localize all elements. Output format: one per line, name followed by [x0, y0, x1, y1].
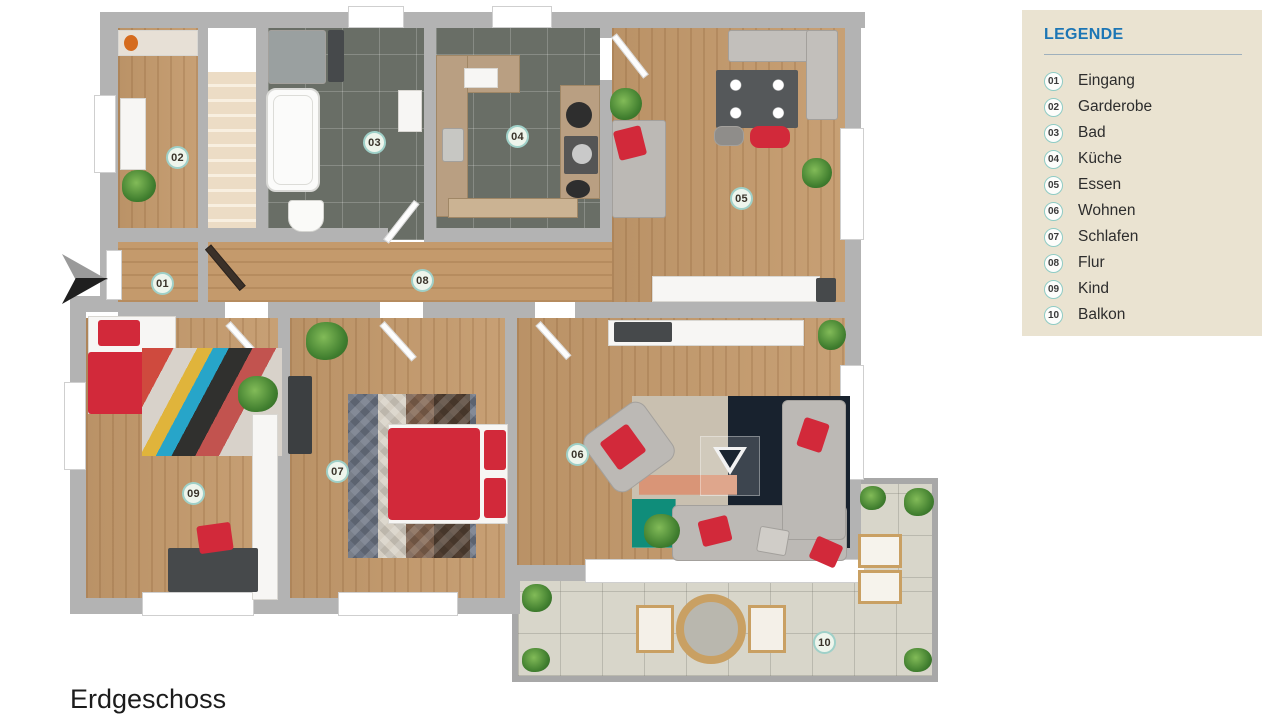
window-left-kind [64, 382, 86, 470]
dining-chair-gray [714, 126, 744, 146]
legend-item-bad: 03 Bad [1044, 120, 1242, 146]
balcony-chair-right [748, 605, 786, 653]
legend-label: Schlafen [1078, 228, 1138, 246]
balcony-table [676, 594, 746, 664]
legend-number: 08 [1044, 254, 1063, 273]
room-badge-kind: 09 [182, 482, 205, 505]
legend-item-wohnen: 06 Wohnen [1044, 198, 1242, 224]
legend-item-essen: 05 Essen [1044, 172, 1242, 198]
legend-number: 10 [1044, 306, 1063, 325]
window-bottom-kind [142, 592, 254, 616]
living-pillow-gray [756, 526, 790, 557]
kitchen-prep-plate [464, 68, 498, 88]
balcony-chair-left [636, 605, 674, 653]
toilet [288, 200, 324, 232]
legend-label: Wohnen [1078, 202, 1135, 220]
wall-bad-kueche [424, 28, 436, 242]
legend-divider [1044, 54, 1242, 55]
legend-item-eingang: 01 Eingang [1044, 68, 1242, 94]
balcony-lounger-2 [858, 570, 902, 604]
balcony-rim-right [932, 478, 938, 682]
legend-item-schlafen: 07 Schlafen [1044, 224, 1242, 250]
window-left-garderobe [94, 95, 116, 173]
living-tv [614, 322, 672, 342]
staircase-steps [208, 72, 256, 228]
wall-corridor-c [423, 302, 535, 318]
garderobe-wardrobe [120, 98, 146, 170]
room-badge-essen: 05 [730, 187, 753, 210]
bath-sink [398, 90, 422, 132]
bedroom-pillow-2 [484, 478, 506, 518]
legend-label: Balkon [1078, 306, 1125, 324]
kitchen-pot [572, 144, 592, 164]
wall-under-top-rooms-a [118, 228, 388, 242]
dining-sideboard [652, 276, 820, 302]
dining-table [716, 70, 798, 128]
room-badge-schlafen: 07 [326, 460, 349, 483]
room-badge-balkon: 10 [813, 631, 836, 654]
floor-title: Erdgeschoss [70, 684, 226, 715]
room-badge-eingang: 01 [151, 272, 174, 295]
kids-bed-pillow [98, 320, 140, 346]
kids-desk [168, 548, 258, 592]
legend-number: 07 [1044, 228, 1063, 247]
balcony-rim-bottom [512, 676, 938, 682]
window-right-essen [840, 128, 864, 240]
legend-item-flur: 08 Flur [1044, 250, 1242, 276]
dining-chair-red [750, 126, 790, 148]
wall-garderobe-stairs [198, 28, 208, 242]
bathtub [266, 88, 320, 192]
legend-title: LEGENDE [1044, 26, 1242, 44]
room-badge-garderobe: 02 [166, 146, 189, 169]
room-badge-bad: 03 [363, 131, 386, 154]
wall-corridor-d [575, 302, 845, 318]
kitchen-basin [566, 102, 592, 128]
room-badge-kueche: 04 [506, 125, 529, 148]
legend-label: Bad [1078, 124, 1106, 142]
kids-chair [196, 522, 234, 554]
balcony-lounger-1 [858, 534, 902, 568]
floor-plan: 01 02 03 04 05 06 07 08 09 10 [0, 0, 1000, 721]
legend-label: Küche [1078, 150, 1122, 168]
legend-panel: LEGENDE 01 Eingang 02 Garderobe 03 Bad 0… [1022, 10, 1262, 336]
window-top-2 [492, 6, 552, 28]
shower [268, 30, 326, 84]
legend-number: 04 [1044, 150, 1063, 169]
kitchen-counter-bottom [448, 198, 578, 218]
bedroom-tv-panel [288, 376, 312, 454]
entry-door-frame [106, 250, 122, 300]
legend-label: Flur [1078, 254, 1105, 272]
wall-under-top-rooms-b [424, 228, 612, 242]
legend-number: 01 [1044, 72, 1063, 91]
window-top-1 [348, 6, 404, 28]
room-badge-flur: 08 [411, 269, 434, 292]
dining-sideboard-tv [816, 278, 836, 302]
room-badge-wohnen: 06 [566, 443, 589, 466]
kitchen-sink [442, 128, 464, 162]
living-rug-logo [700, 436, 760, 496]
bedroom-duvet [388, 428, 480, 520]
legend-number: 05 [1044, 176, 1063, 195]
legend-number: 02 [1044, 98, 1063, 117]
floor-flur [118, 242, 612, 302]
wall-top [100, 12, 865, 28]
legend-item-kueche: 04 Küche [1044, 146, 1242, 172]
wall-eingang-stub [198, 236, 208, 302]
legend-label: Garderobe [1078, 98, 1152, 116]
legend-number: 09 [1044, 280, 1063, 299]
legend-label: Eingang [1078, 72, 1135, 90]
legend-item-kind: 09 Kind [1044, 276, 1242, 302]
wall-kueche-essen-stub [600, 28, 612, 38]
legend-item-balkon: 10 Balkon [1044, 302, 1242, 328]
garderobe-shelf-item [124, 35, 138, 51]
kitchen-basin-2 [566, 180, 590, 198]
dining-corner-sofa-right [806, 30, 838, 120]
wall-corridor-b [268, 302, 380, 318]
legend-item-garderobe: 02 Garderobe [1044, 94, 1242, 120]
legend-number: 03 [1044, 124, 1063, 143]
bath-cabinet [328, 30, 344, 82]
legend-label: Essen [1078, 176, 1121, 194]
bedroom-pillow-1 [484, 430, 506, 470]
wall-bottom-connector [505, 565, 520, 614]
legend-label: Kind [1078, 280, 1109, 298]
window-bottom-schlafen [338, 592, 458, 616]
legend-number: 06 [1044, 202, 1063, 221]
